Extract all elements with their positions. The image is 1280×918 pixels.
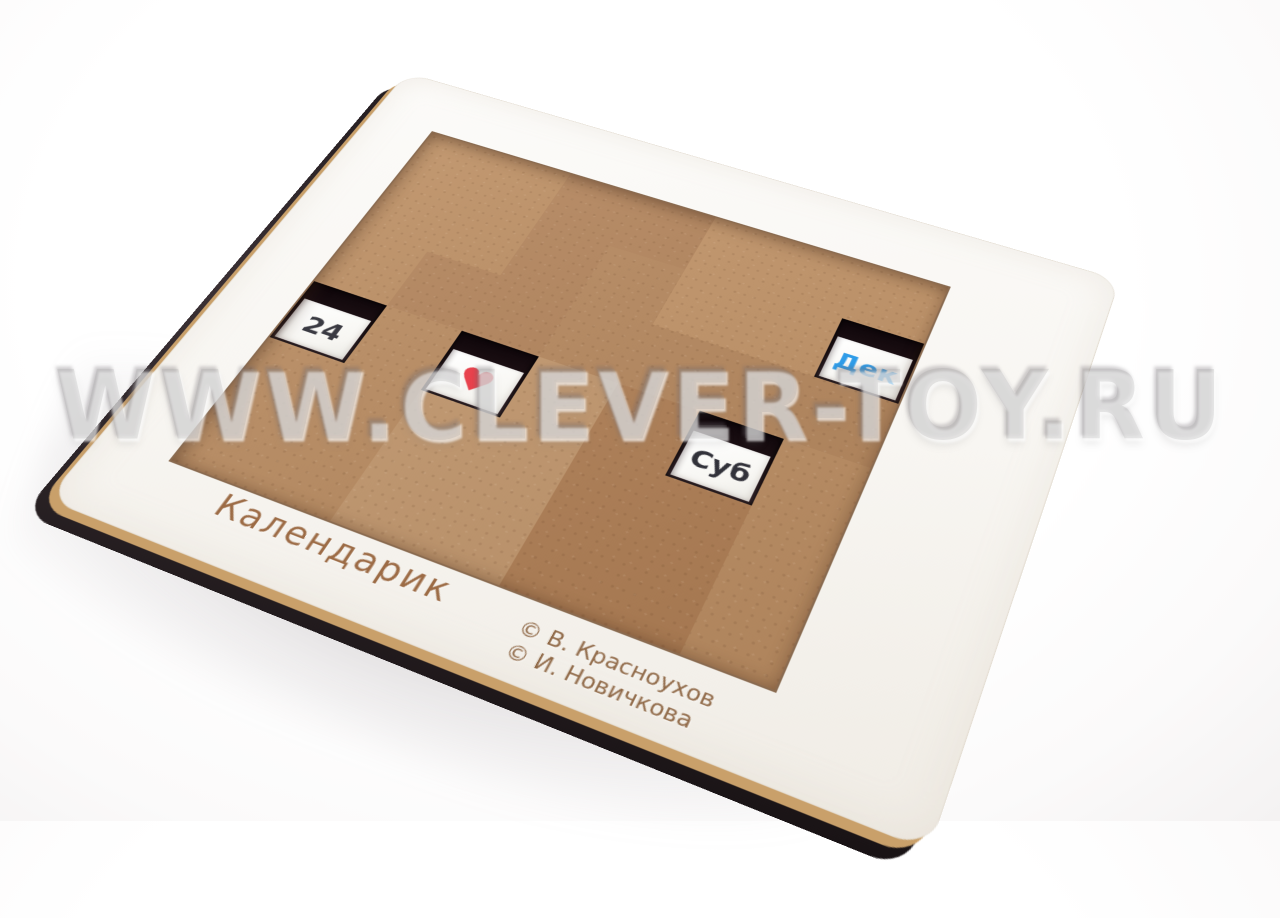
puzzle-board-3d: 24 ♥ Суб Дек — [46, 72, 1120, 851]
puzzle-board: 24 ♥ Суб Дек — [46, 72, 1120, 851]
puzzle-pieces — [171, 132, 948, 690]
product-photo-scene: 24 ♥ Суб Дек — [0, 0, 1280, 821]
puzzle-tray: 24 ♥ Суб Дек — [171, 132, 948, 690]
